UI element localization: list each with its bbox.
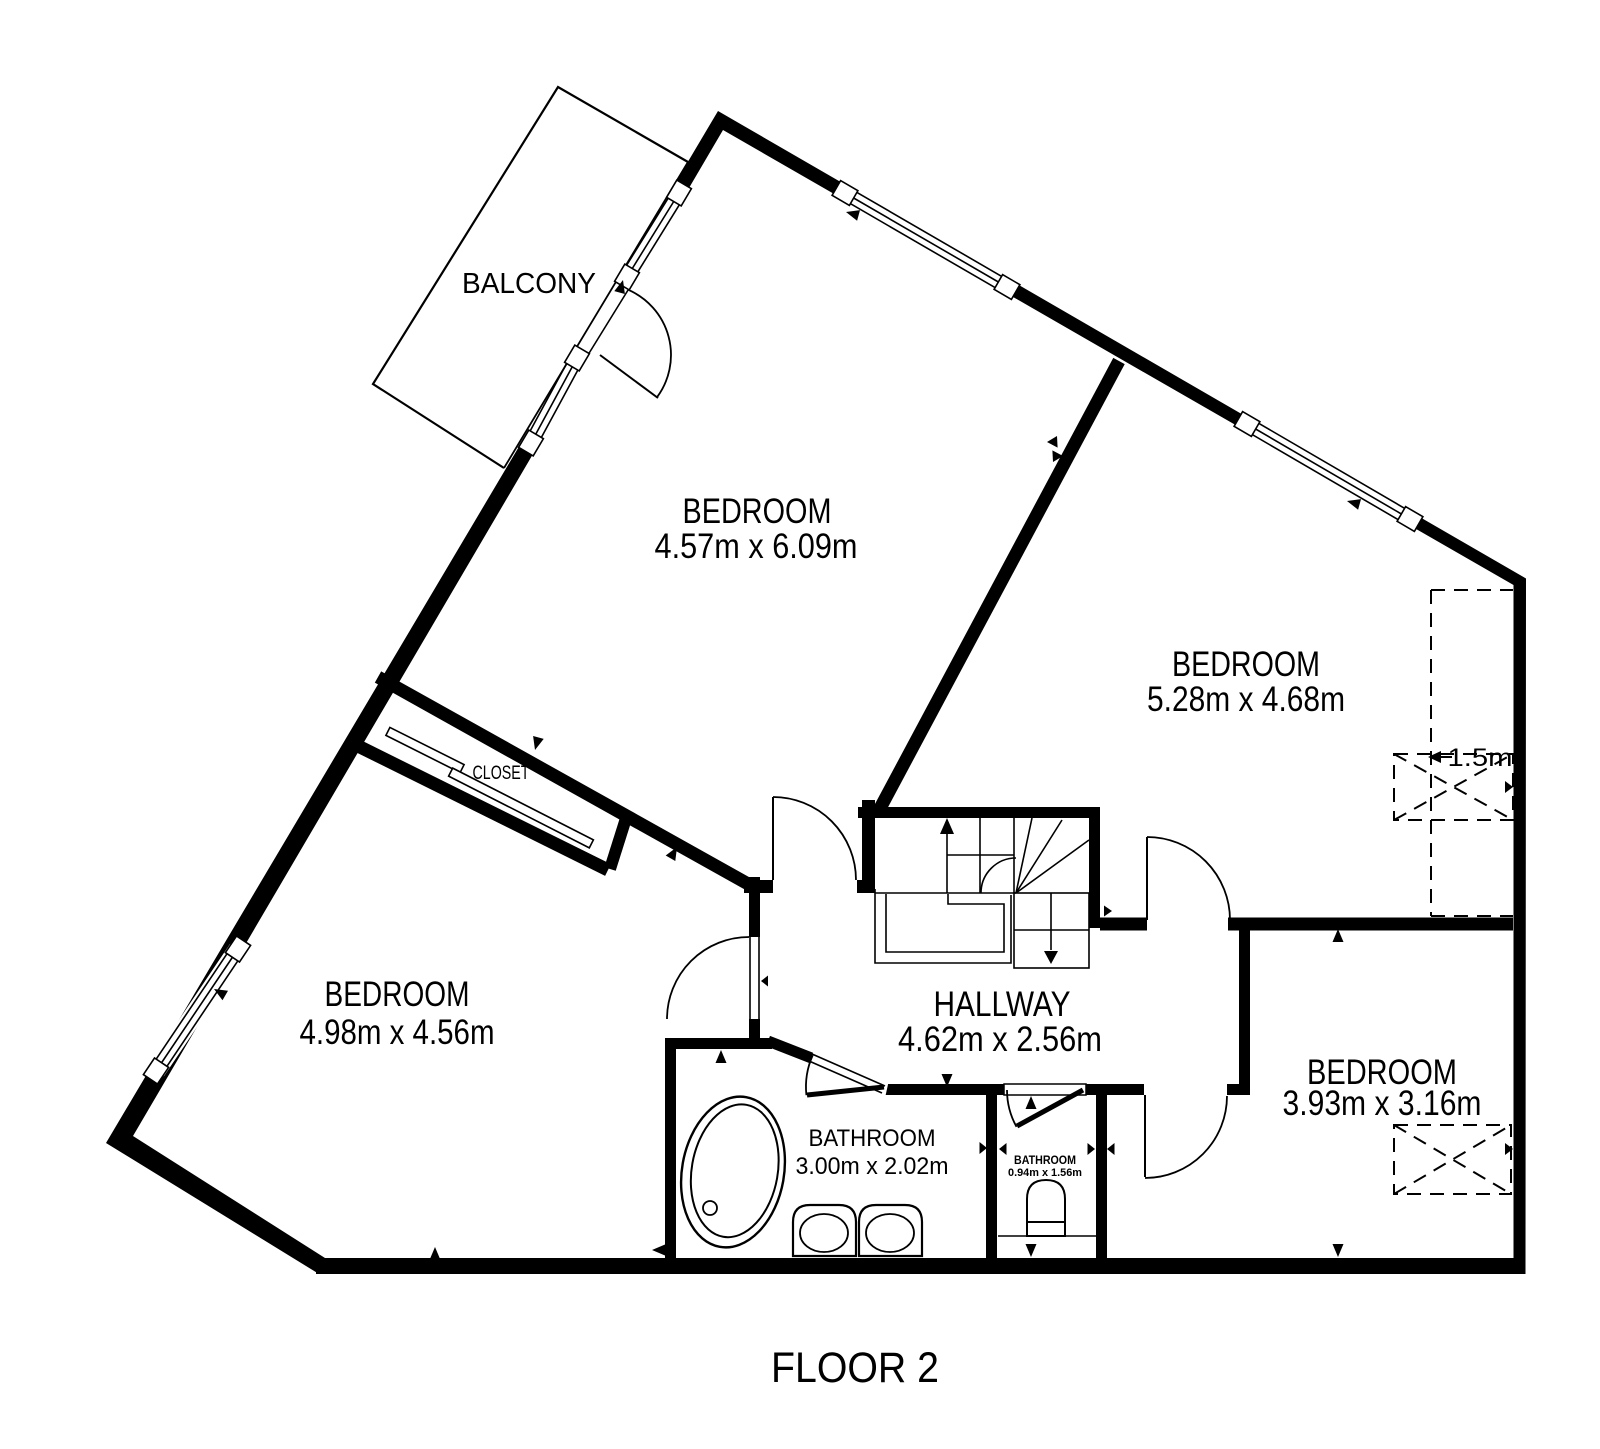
svg-text:4.57m x 6.09m: 4.57m x 6.09m [655, 527, 858, 566]
svg-text:4.98m x 4.56m: 4.98m x 4.56m [300, 1013, 495, 1052]
svg-text:HALLWAY: HALLWAY [934, 985, 1071, 1024]
svg-text:FLOOR 2: FLOOR 2 [771, 1344, 939, 1392]
svg-text:BEDROOM: BEDROOM [325, 975, 470, 1014]
svg-text:5.28m x 4.68m: 5.28m x 4.68m [1147, 680, 1345, 719]
svg-text:BATHROOM: BATHROOM [1014, 1155, 1076, 1167]
svg-text:BEDROOM: BEDROOM [683, 492, 832, 531]
svg-text:BATHROOM: BATHROOM [809, 1125, 936, 1152]
svg-text:CLOSET: CLOSET [473, 763, 530, 784]
svg-text:BALCONY: BALCONY [462, 268, 596, 300]
svg-text:4.62m x 2.56m: 4.62m x 2.56m [898, 1020, 1102, 1059]
svg-text:3.00m x 2.02m: 3.00m x 2.02m [796, 1153, 949, 1180]
svg-text:0.94m x 1.56m: 0.94m x 1.56m [1008, 1167, 1082, 1179]
svg-text:3.93m x 3.16m: 3.93m x 3.16m [1283, 1084, 1482, 1123]
svg-text:BEDROOM: BEDROOM [1172, 645, 1320, 684]
svg-text:1.5m: 1.5m [1448, 744, 1513, 772]
